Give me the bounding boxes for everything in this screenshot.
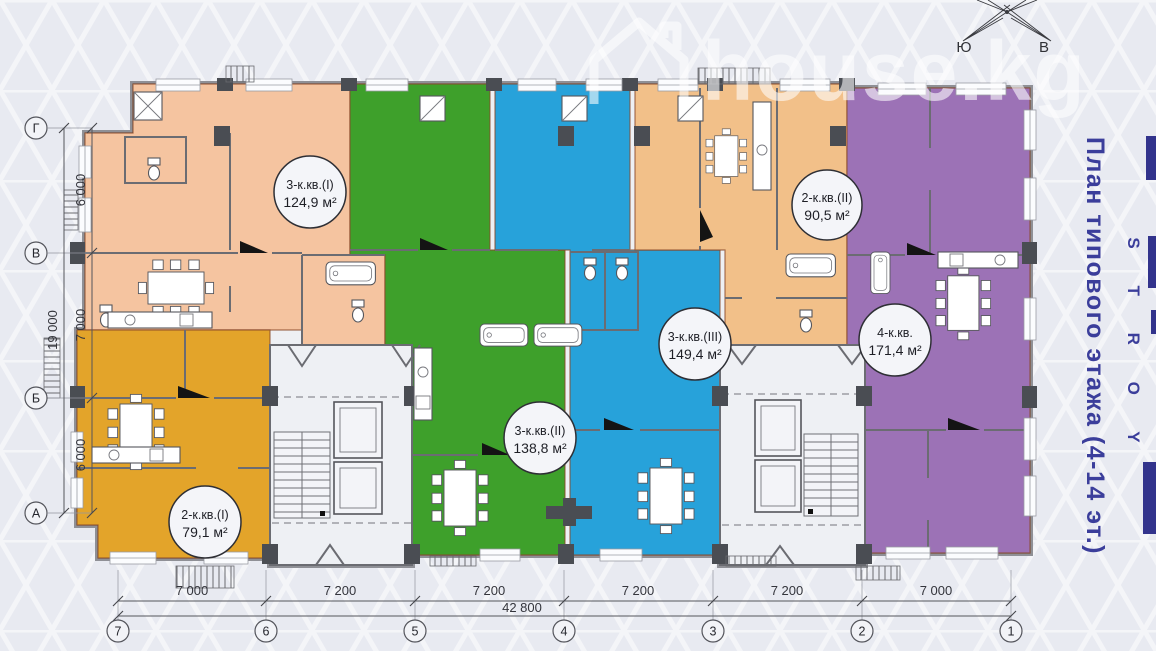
elevator-shafts-right [755, 400, 801, 512]
apartment-area: 138,8 м² [513, 440, 567, 456]
toilet [616, 258, 628, 280]
label-apartment-2kv-2: 2-к.кв.(II) 90,5 м² [792, 170, 862, 240]
apartment-area: 124,9 м² [283, 194, 337, 210]
dimension-label: 7 000 [176, 583, 209, 598]
toilet [148, 158, 160, 180]
apartment-name: 2-к.кв.(I) [181, 508, 228, 522]
apartment-name: 3-к.кв.(III) [668, 330, 722, 344]
grid-bubble: А [32, 507, 41, 521]
label-apartment-4kv: 4-к.кв. 171,4 м² [859, 304, 931, 376]
apartment-area: 149,4 м² [668, 346, 722, 362]
dimension-label: 6 000 [73, 174, 88, 207]
grid-bubble: 2 [859, 625, 866, 639]
apartment-area: 79,1 м² [182, 524, 228, 540]
apartment-name: 3-к.кв.(I) [286, 178, 333, 192]
grid-bubble: 6 [263, 625, 270, 639]
dimension-total-label: 42 800 [502, 600, 542, 615]
grid-bubble: Б [32, 392, 40, 406]
watermark-text: house.kg [702, 24, 1087, 118]
elevator-shafts-left [334, 402, 382, 514]
staircase-right [804, 434, 858, 516]
dimension-label: 7 200 [771, 583, 804, 598]
dimension-label: 7 200 [622, 583, 655, 598]
apartment-name: 3-к.кв.(II) [515, 424, 566, 438]
brochure-photo-page: 3-к.кв.(I) 124,9 м² 3-к.кв.(II) 138,8 м²… [0, 0, 1156, 651]
apartment-name: 4-к.кв. [877, 326, 913, 340]
brand-letters-vertical: S T R O Y [1124, 237, 1143, 458]
dimension-total-label: 19 000 [45, 310, 60, 350]
plan-title-vertical: План типового этажа (4-14 эт.) [1081, 137, 1109, 555]
apartment-name: 2-к.кв.(II) [802, 191, 853, 205]
label-apartment-3kv-3: 3-к.кв.(III) 149,4 м² [659, 308, 731, 380]
grid-bubble: Г [33, 122, 40, 136]
label-apartment-3kv-1: 3-к.кв.(I) 124,9 м² [274, 156, 346, 228]
staircase-left [274, 432, 330, 518]
grid-bubble: 5 [412, 625, 419, 639]
bathtub [326, 262, 375, 285]
label-apartment-2kv-1: 2-к.кв.(I) 79,1 м² [169, 486, 241, 558]
dimension-label: 7 200 [473, 583, 506, 598]
grid-bubble: 4 [561, 625, 568, 639]
grid-bubble: 7 [115, 625, 122, 639]
toilet [352, 300, 364, 322]
grid-bubble: 1 [1008, 625, 1015, 639]
bathtub [480, 324, 528, 346]
dimension-label: 6 000 [73, 439, 88, 472]
grid-bubble: 3 [710, 625, 717, 639]
toilet [800, 310, 812, 332]
label-apartment-3kv-2: 3-к.кв.(II) 138,8 м² [504, 402, 576, 474]
bathtub [534, 324, 582, 346]
grid-bubble: В [32, 247, 40, 261]
apartment-area: 90,5 м² [804, 207, 850, 223]
floor-plan-canvas: 3-к.кв.(I) 124,9 м² 3-к.кв.(II) 138,8 м²… [0, 0, 1156, 651]
apartment-area: 171,4 м² [868, 342, 922, 358]
toilet [584, 258, 596, 280]
dimension-label: 7 000 [73, 309, 88, 342]
bathtub [786, 254, 835, 277]
dimension-label: 7 000 [920, 583, 953, 598]
dimension-label: 7 200 [324, 583, 357, 598]
bathtub [871, 252, 890, 294]
